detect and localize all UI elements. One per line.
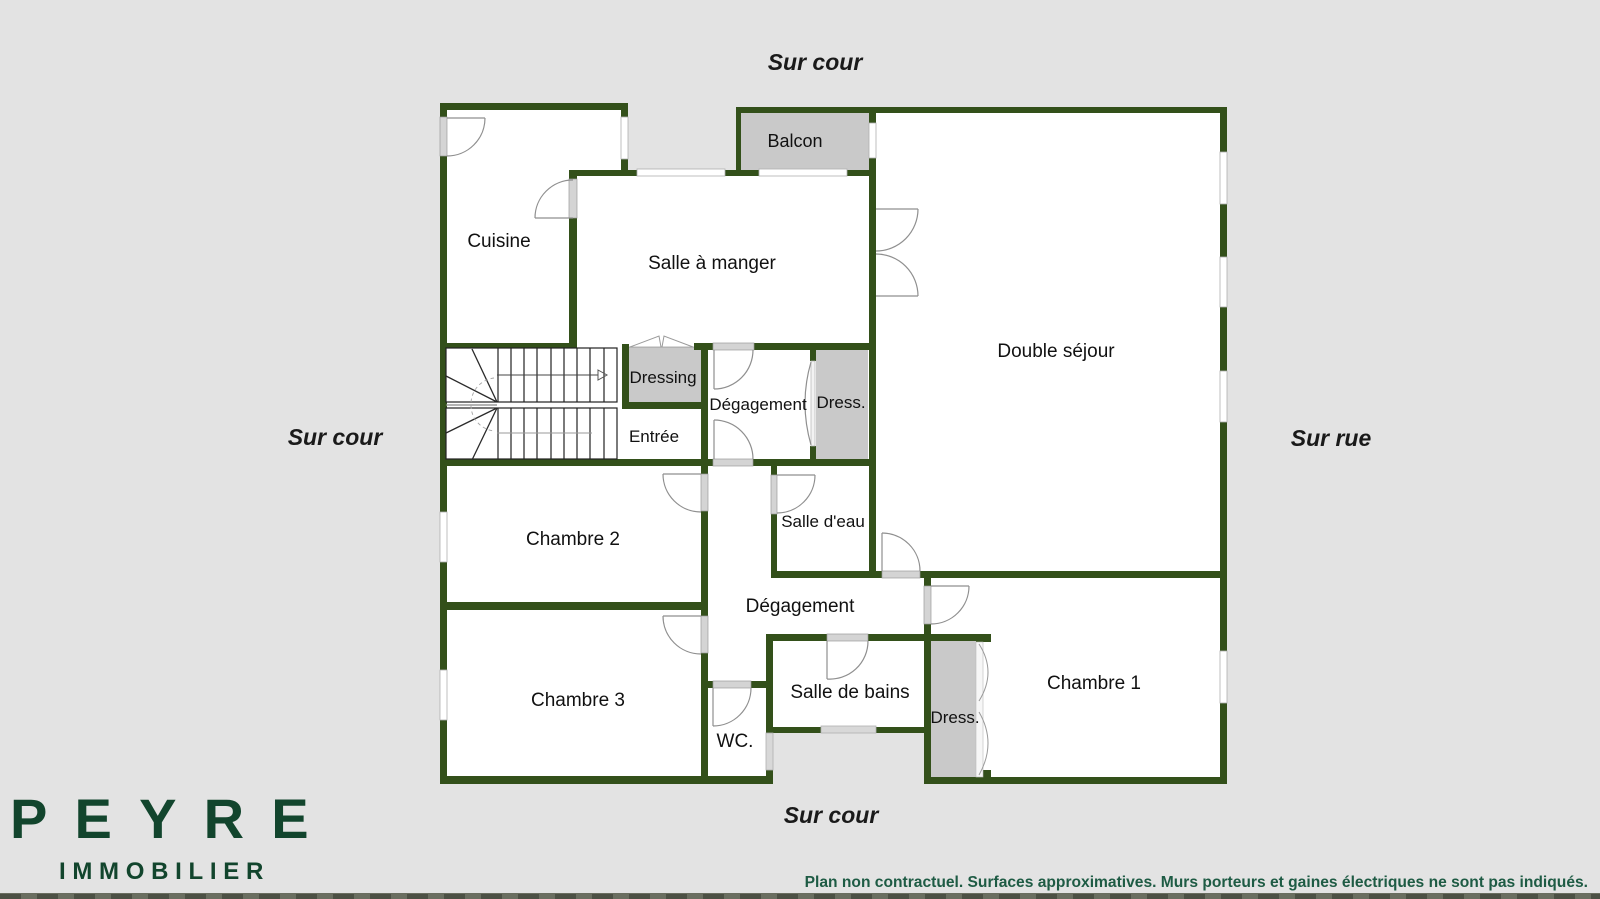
svg-text:Balcon: Balcon <box>767 131 822 151</box>
svg-text:Sur cour: Sur cour <box>288 424 384 450</box>
svg-text:Cuisine: Cuisine <box>467 231 530 252</box>
svg-text:Dressing: Dressing <box>629 368 696 387</box>
svg-text:PEYRE: PEYRE <box>10 787 336 850</box>
svg-text:Dégagement: Dégagement <box>746 596 856 617</box>
svg-text:Plan non contractuel. Surfaces: Plan non contractuel. Surfaces approxima… <box>805 874 1588 891</box>
svg-text:Chambre 2: Chambre 2 <box>526 529 620 550</box>
svg-text:Salle à manger: Salle à manger <box>648 253 776 274</box>
svg-text:Salle d'eau: Salle d'eau <box>781 512 865 531</box>
svg-text:Salle de bains: Salle de bains <box>790 682 909 703</box>
svg-text:Double séjour: Double séjour <box>997 341 1115 362</box>
svg-text:Chambre 1: Chambre 1 <box>1047 673 1141 694</box>
svg-text:Dégagement: Dégagement <box>709 395 807 414</box>
svg-text:Dress.: Dress. <box>930 708 979 727</box>
svg-text:IMMOBILIER: IMMOBILIER <box>59 858 270 885</box>
svg-text:Sur cour: Sur cour <box>768 49 864 75</box>
svg-text:WC.: WC. <box>717 731 754 752</box>
svg-text:Entrée: Entrée <box>629 427 679 446</box>
svg-text:Chambre 3: Chambre 3 <box>531 690 625 711</box>
svg-text:Sur rue: Sur rue <box>1291 425 1372 451</box>
svg-text:Sur cour: Sur cour <box>784 802 880 828</box>
svg-text:Dress.: Dress. <box>816 393 865 412</box>
